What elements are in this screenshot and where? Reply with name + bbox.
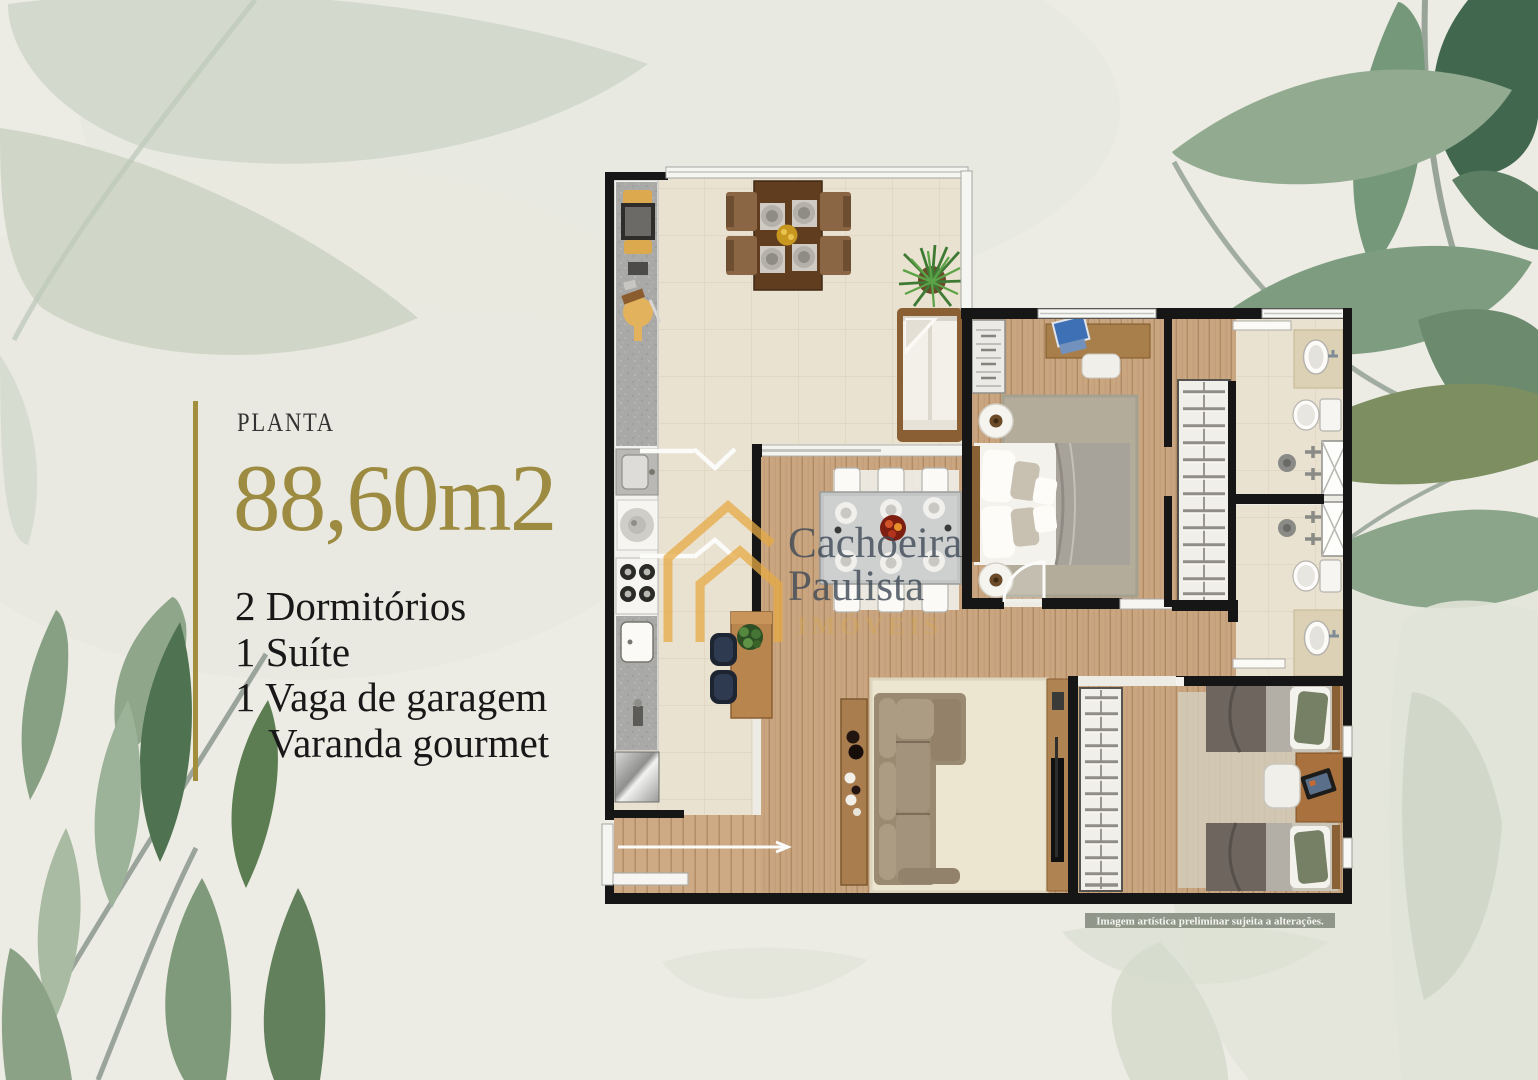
svg-text:Paulista: Paulista: [788, 563, 924, 610]
svg-text:Imagem artística preliminar su: Imagem artística preliminar sujeita a al…: [1096, 916, 1324, 928]
svg-text:Cachoeira: Cachoeira: [788, 520, 962, 567]
svg-text:IMÓVEIS: IMÓVEIS: [797, 612, 943, 640]
